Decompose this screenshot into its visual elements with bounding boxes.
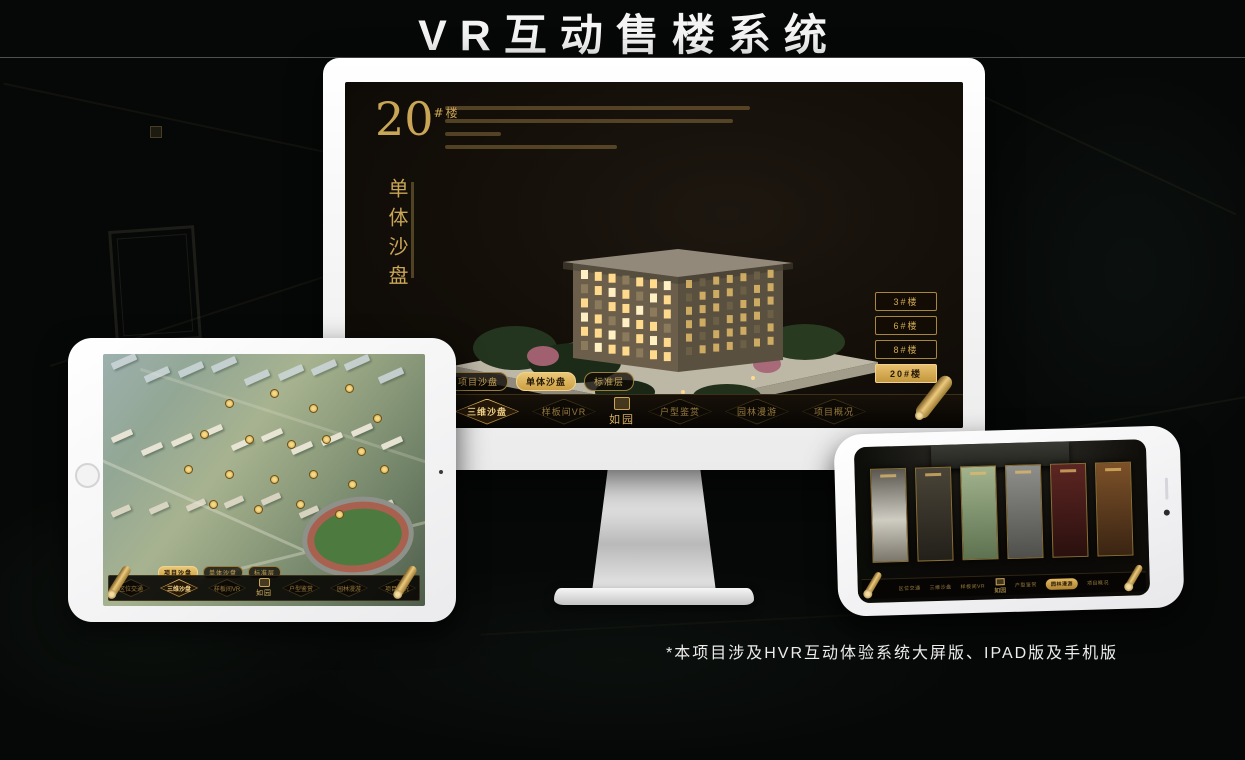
bg-map-line bbox=[4, 83, 337, 156]
building-block-render bbox=[111, 429, 134, 443]
building-marker[interactable] bbox=[373, 414, 382, 423]
block-number: 20 bbox=[375, 92, 434, 146]
tablet-brand-logo: 如园 bbox=[256, 578, 272, 598]
building-block-render bbox=[171, 433, 194, 447]
phone-nav-item-project-overview[interactable]: 项目概况 bbox=[1087, 579, 1109, 587]
phone-brand-logo: 如园 bbox=[994, 578, 1006, 594]
brand-emblem-icon bbox=[259, 578, 270, 587]
building-block-render bbox=[351, 423, 374, 437]
tablet-nav-item-garden-roam[interactable]: 园林漫游 bbox=[330, 579, 368, 597]
menu-card-intro[interactable] bbox=[1050, 463, 1089, 558]
bg-map-line bbox=[964, 87, 1237, 216]
tablet-home-button[interactable] bbox=[75, 463, 100, 488]
phone-nav-item-3d-sandtable[interactable]: 三维沙盘 bbox=[929, 584, 951, 592]
building-marker[interactable] bbox=[309, 404, 318, 413]
building-button-8[interactable]: 8#楼 bbox=[875, 340, 937, 359]
phone-nav-item-location[interactable]: 区位交通 bbox=[898, 584, 920, 592]
brand-logo: 如园 bbox=[609, 397, 635, 427]
nav-item-floorplans[interactable]: 户型鉴赏 bbox=[648, 399, 712, 425]
block-subtitle-vertical: 单体沙盘 bbox=[383, 178, 412, 294]
bg-certificate-frame bbox=[108, 225, 202, 345]
nav-item-garden-roam[interactable]: 园林漫游 bbox=[725, 399, 789, 425]
building-marker[interactable] bbox=[200, 430, 209, 439]
tab-single-sandtable[interactable]: 单体沙盘 bbox=[516, 372, 576, 391]
building-block-render bbox=[261, 428, 284, 442]
tablet-nav-bar: 区位交通 三维沙盘 样板间VR 如园 户型鉴赏 园林漫游 项目概况 bbox=[108, 575, 420, 601]
building-marker[interactable] bbox=[322, 435, 331, 444]
building-block-render bbox=[141, 442, 164, 456]
building-marker[interactable] bbox=[245, 435, 254, 444]
building-block-render bbox=[261, 492, 282, 506]
monitor-stand-neck bbox=[592, 466, 716, 592]
building-marker[interactable] bbox=[184, 465, 193, 474]
building-marker[interactable] bbox=[225, 470, 234, 479]
building-block-render bbox=[211, 356, 238, 373]
monitor-stand-base bbox=[554, 588, 754, 605]
building-block-render bbox=[377, 367, 404, 384]
description-text-lines bbox=[445, 106, 750, 158]
tablet-nav-item-showroom-vr[interactable]: 样板间VR bbox=[208, 579, 246, 597]
building-block-render bbox=[111, 354, 138, 370]
bg-brand-mark bbox=[150, 126, 162, 138]
page-title: VR互动售楼系统 bbox=[0, 1, 1245, 63]
brand-emblem-icon bbox=[614, 397, 630, 410]
building-marker[interactable] bbox=[309, 470, 318, 479]
building-marker[interactable] bbox=[254, 505, 263, 514]
building-marker[interactable] bbox=[270, 475, 279, 484]
phone-nav-item-garden-roam[interactable]: 园林漫游 bbox=[1046, 578, 1078, 590]
block-subtitle-caption bbox=[411, 182, 414, 278]
building-marker[interactable] bbox=[209, 500, 218, 509]
building-marker[interactable] bbox=[287, 440, 296, 449]
phone-screen: 区位交通 三维沙盘 样板间VR 如园 户型鉴赏 园林漫游 项目概况 bbox=[854, 439, 1150, 603]
building-marker[interactable] bbox=[296, 500, 305, 509]
menu-card-interior[interactable] bbox=[870, 468, 909, 563]
tablet-nav-item-3d-sandtable[interactable]: 三维沙盘 bbox=[160, 579, 198, 597]
tab-project-sandtable[interactable]: 项目沙盘 bbox=[448, 372, 508, 391]
building-marker[interactable] bbox=[335, 510, 344, 519]
building-block-render bbox=[223, 495, 244, 509]
footnote: *本项目涉及HVR互动体验系统大屏版、IPAD版及手机版 bbox=[666, 639, 1118, 663]
building-marker[interactable] bbox=[380, 465, 389, 474]
menu-card-study[interactable] bbox=[1095, 462, 1134, 557]
nav-item-3d-sandtable[interactable]: 三维沙盘 bbox=[455, 399, 519, 425]
phone-speaker-icon bbox=[1165, 478, 1169, 500]
phone-nav-item-floorplans[interactable]: 户型鉴赏 bbox=[1015, 581, 1037, 589]
phone-frame: 区位交通 三维沙盘 样板间VR 如园 户型鉴赏 园林漫游 项目概况 bbox=[834, 425, 1185, 617]
menu-card-aerial[interactable] bbox=[960, 465, 999, 560]
building-button-3[interactable]: 3#楼 bbox=[875, 292, 937, 311]
nav-item-project-overview[interactable]: 项目概况 bbox=[802, 399, 866, 425]
phone-nav-item-showroom-vr[interactable]: 样板间VR bbox=[960, 583, 985, 591]
road-line bbox=[103, 455, 313, 555]
tablet-nav-item-floorplans[interactable]: 户型鉴赏 bbox=[282, 579, 320, 597]
stadium-render bbox=[303, 495, 414, 579]
bg-map-patch bbox=[960, 60, 1245, 480]
building-block-render bbox=[277, 364, 304, 381]
phone-menu-cards bbox=[870, 462, 1134, 563]
tablet-camera-icon bbox=[439, 470, 443, 474]
building-block-render bbox=[177, 361, 204, 378]
tablet-screen: 项目沙盘 单体沙盘 标准层 区位交通 三维沙盘 样板间VR 如园 户型鉴赏 园林… bbox=[103, 354, 425, 606]
building-button-20[interactable]: 20#楼 bbox=[875, 364, 937, 383]
nav-item-showroom-vr[interactable]: 样板间VR bbox=[532, 399, 596, 425]
tablet-frame: 项目沙盘 单体沙盘 标准层 区位交通 三维沙盘 样板间VR 如园 户型鉴赏 园林… bbox=[68, 338, 456, 622]
building-button-6[interactable]: 6#楼 bbox=[875, 316, 937, 335]
building-block-render bbox=[311, 359, 338, 376]
building-marker[interactable] bbox=[357, 447, 366, 456]
building-button-group: 3#楼 6#楼 8#楼 20#楼 bbox=[875, 292, 937, 383]
building-block-render bbox=[148, 501, 169, 515]
building-block-render bbox=[344, 354, 371, 371]
building-marker[interactable] bbox=[225, 399, 234, 408]
building-block-render bbox=[244, 369, 271, 386]
phone-camera-icon bbox=[1164, 510, 1170, 516]
building-marker[interactable] bbox=[270, 389, 279, 398]
view-tab-group: 项目沙盘 单体沙盘 标准层 bbox=[448, 372, 634, 391]
building-marker[interactable] bbox=[348, 480, 357, 489]
menu-card-facade[interactable] bbox=[1005, 464, 1044, 559]
building-marker[interactable] bbox=[345, 384, 354, 393]
building-block-render bbox=[111, 504, 132, 518]
menu-card-garage[interactable] bbox=[915, 467, 954, 562]
tab-standard-floor[interactable]: 标准层 bbox=[584, 372, 634, 391]
